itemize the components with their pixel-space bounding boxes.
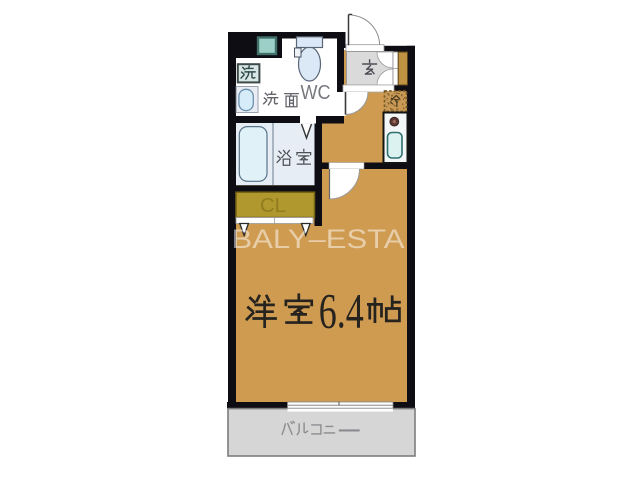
svg-text:BALY–ESTA: BALY–ESTA: [232, 224, 405, 254]
svg-text:6.4: 6.4: [319, 283, 364, 339]
svg-text:WC: WC: [301, 82, 331, 104]
svg-text:CL: CL: [260, 194, 286, 217]
